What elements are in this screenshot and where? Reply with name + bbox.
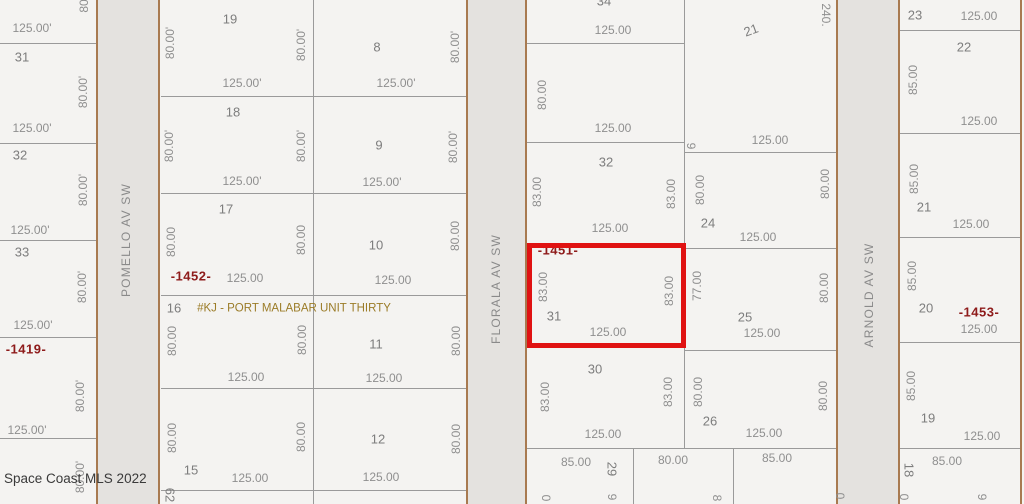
lot-number: 19 (223, 13, 237, 26)
dimension-label: 80.00 (658, 454, 688, 466)
dimension-label: 85.00 (561, 456, 591, 468)
dimension-label: 125.00 (375, 274, 412, 286)
dimension-label: 83.00 (665, 179, 677, 209)
lot-boundary-line (685, 350, 837, 351)
lot-number: 11 (369, 338, 383, 351)
lot-number: 29 (606, 462, 619, 476)
dimension-label: 80.00 (166, 326, 178, 356)
lot-boundary-line (685, 152, 837, 153)
dimension-label: 125.00 (595, 122, 632, 134)
lot-boundary-line (685, 248, 837, 249)
dimension-label: 125.00 (592, 222, 629, 234)
lot-number: 31 (15, 51, 29, 64)
lot-number: 24 (701, 217, 715, 230)
lot-boundary-line (633, 448, 634, 504)
dimension-label: 80.00' (163, 130, 175, 162)
dimension-label: 80.00' (76, 271, 88, 303)
dimension-label: 80 (78, 0, 90, 13)
lot-boundary-line (0, 240, 96, 241)
dimension-label: 8 (711, 495, 723, 502)
street-edge-line (158, 0, 160, 504)
dimension-label: 80.00 (165, 227, 177, 257)
highlight-rectangle (527, 243, 686, 348)
dimension-label: 0 (834, 493, 846, 500)
dimension-label: 125.00 (964, 430, 1001, 442)
dimension-label: 80.00' (295, 29, 307, 61)
lot-boundary-line (733, 448, 734, 504)
lot-number: 21 (917, 201, 931, 214)
dimension-label: 125.00' (11, 224, 50, 236)
street-name-label: POMELLO AV SW (119, 183, 133, 297)
street-name-label: FLORALA AV SW (489, 234, 503, 344)
dimension-label: 80.00 (817, 381, 829, 411)
lot-number: 19 (921, 412, 935, 425)
dimension-label: 80.00' (295, 130, 307, 162)
lot-boundary-line (900, 448, 1021, 449)
lot-number: 32 (599, 156, 613, 169)
lot-number: 18 (903, 463, 916, 477)
dimension-label: 80.00 (819, 169, 831, 199)
lot-number: 32 (13, 149, 27, 162)
dimension-label: 9 (606, 494, 618, 501)
lot-boundary-line (900, 237, 1021, 238)
lot-number: 20 (919, 302, 933, 315)
lot-number: 10 (369, 239, 383, 252)
street-edge-line (836, 0, 838, 504)
lot-number: 16 (167, 302, 181, 315)
dimension-label: 0 (898, 494, 910, 501)
mls-watermark: Space Coast MLS 2022 (4, 471, 147, 486)
dimension-label: 80.00 (166, 423, 178, 453)
dimension-label: 80.00 (449, 221, 461, 251)
lot-number: 34 (597, 0, 611, 8)
lot-boundary-line (161, 295, 467, 296)
lot-number: 17 (219, 203, 233, 216)
dimension-label: 125.00' (363, 176, 402, 188)
dimension-label: 83.00 (662, 377, 674, 407)
dimension-label: 80.00 (450, 424, 462, 454)
dimension-label: 125.00 (961, 323, 998, 335)
lot-number: 9 (375, 139, 382, 152)
lot-boundary-line (161, 193, 467, 194)
dimension-label: 125.00' (14, 319, 53, 331)
lot-number: 21 (742, 21, 760, 38)
dimension-label: 85.00 (762, 452, 792, 464)
dimension-label: 85.00 (932, 455, 962, 467)
dimension-label: 80.00 (296, 325, 308, 355)
lot-boundary-line (313, 0, 314, 504)
lot-boundary-line (527, 448, 837, 449)
dimension-label: 125.00' (223, 175, 262, 187)
dimension-label: 80.00' (77, 76, 89, 108)
dimension-label: 125.00 (961, 115, 998, 127)
subdivision-note: #KJ - PORT MALABAR UNIT THIRTY (197, 303, 391, 315)
lot-boundary-line (0, 438, 96, 439)
lot-number: 23 (908, 9, 922, 22)
plat-book-ref: -1452- (171, 270, 212, 283)
dimension-label: 125.00 (227, 272, 264, 284)
lot-number: 12 (371, 433, 385, 446)
lot-number: 62 (164, 488, 177, 502)
dimension-label: 83.00 (531, 177, 543, 207)
dimension-label: 125.00' (377, 77, 416, 89)
dimension-label: 125.00' (13, 22, 52, 34)
street-name-label: ARNOLD AV SW (862, 243, 876, 348)
lot-boundary-line (161, 96, 467, 97)
dimension-label: 85.00 (907, 65, 919, 95)
lot-boundary-line (900, 30, 1021, 31)
dimension-label: 80.00 (450, 326, 462, 356)
dimension-label: 125.00' (223, 77, 262, 89)
plat-book-ref: -1419- (6, 343, 47, 356)
lot-boundary-line (527, 142, 685, 143)
lot-number: 18 (226, 106, 240, 119)
lot-boundary-line (900, 133, 1021, 134)
dimension-label: 80.00 (295, 422, 307, 452)
lot-boundary-line (527, 43, 684, 44)
dimension-label: 125.00 (232, 472, 269, 484)
dimension-label: 125.00 (953, 218, 990, 230)
dimension-label: 125.00 (366, 372, 403, 384)
dimension-label: 125.00 (595, 24, 632, 36)
lot-number: 25 (738, 311, 752, 324)
dimension-label: 80.00 (295, 225, 307, 255)
street-edge-line (898, 0, 900, 504)
dimension-label: 125.00 (961, 10, 998, 22)
street-edge-line (466, 0, 468, 504)
dimension-label: 125.00 (363, 471, 400, 483)
dimension-label: 80.00' (449, 31, 461, 63)
dimension-label: 80.00 (694, 175, 706, 205)
lot-number: 30 (588, 363, 602, 376)
dimension-label: 125.00' (13, 122, 52, 134)
dimension-label: 85.00 (905, 371, 917, 401)
dimension-label: 80.00' (447, 131, 459, 163)
dimension-label: 0 (540, 495, 552, 502)
dimension-label: 240. (820, 3, 832, 26)
dimension-label: 125.00 (585, 428, 622, 440)
lot-number: 22 (957, 41, 971, 54)
lot-boundary-line (684, 0, 685, 448)
dimension-label: 80.00 (818, 273, 830, 303)
street-edge-line (1020, 0, 1022, 504)
lot-number: 15 (184, 464, 198, 477)
dimension-label: 80.00 (536, 80, 548, 110)
plat-book-ref: -1453- (959, 306, 1000, 319)
dimension-label: 80.00' (74, 380, 86, 412)
dimension-label: 125.00 (740, 231, 777, 243)
dimension-label: 125.00 (744, 327, 781, 339)
dimension-label: 77.00 (691, 271, 703, 301)
lot-boundary-line (0, 43, 96, 44)
street-edge-line (96, 0, 98, 504)
dimension-label: 125.00 (752, 134, 789, 146)
dimension-label: 125.00 (228, 371, 265, 383)
dimension-label: 83.00 (539, 382, 551, 412)
lot-boundary-line (0, 337, 96, 338)
dimension-label: 80.00 (692, 377, 704, 407)
lot-boundary-line (0, 143, 96, 144)
plat-map: Space Coast MLS 2022 POMELLO AV SWFLORAL… (0, 0, 1024, 504)
dimension-label: 85.00 (906, 261, 918, 291)
dimension-label: 9 (976, 494, 988, 501)
lot-boundary-line (900, 342, 1021, 343)
lot-number: 8 (373, 41, 380, 54)
dimension-label: 80.00' (77, 174, 89, 206)
dimension-label: 125.00' (8, 424, 47, 436)
dimension-label: 85.00 (908, 164, 920, 194)
lot-number: 33 (15, 246, 29, 259)
dimension-label: 125.00 (746, 427, 783, 439)
lot-boundary-line (161, 388, 467, 389)
lot-boundary-line (161, 490, 467, 491)
lot-number: 26 (703, 415, 717, 428)
dimension-label: 80.00' (164, 27, 176, 59)
dimension-label: 9 (685, 143, 697, 150)
